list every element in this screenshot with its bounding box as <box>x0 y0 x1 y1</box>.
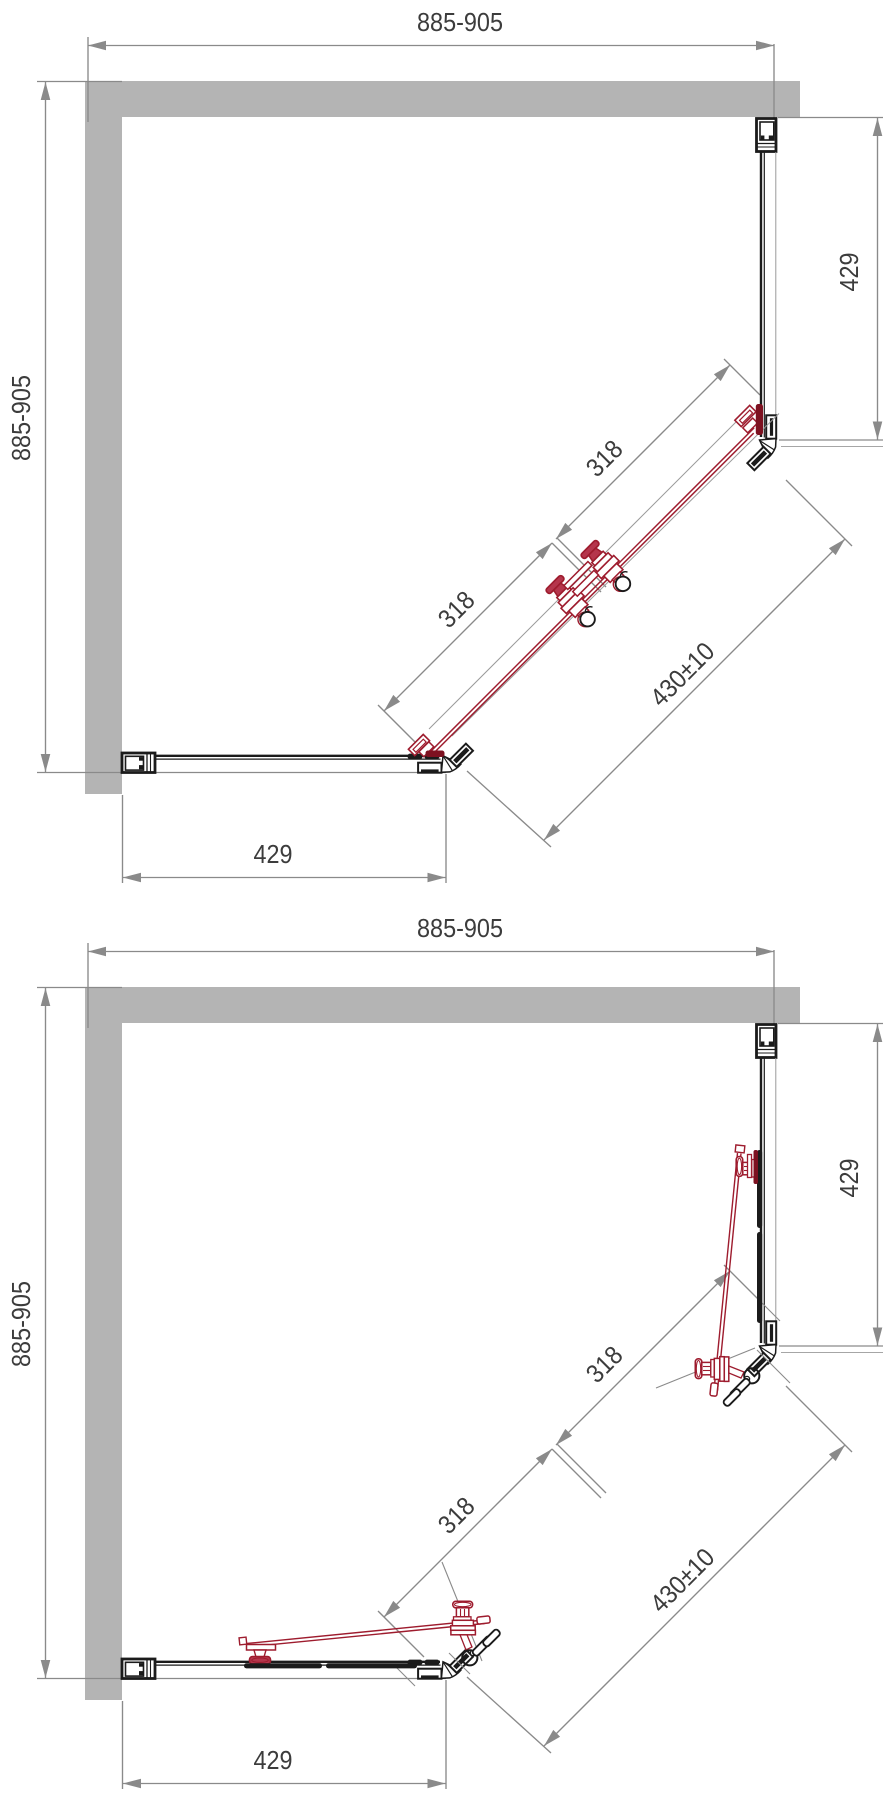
svg-text:885-905: 885-905 <box>417 7 503 37</box>
svg-text:429: 429 <box>254 839 293 869</box>
svg-text:429: 429 <box>254 1745 293 1775</box>
svg-text:885-905: 885-905 <box>417 913 503 943</box>
svg-text:429: 429 <box>834 253 864 292</box>
svg-text:885-905: 885-905 <box>6 375 36 461</box>
svg-text:429: 429 <box>834 1159 864 1198</box>
svg-text:885-905: 885-905 <box>6 1281 36 1367</box>
